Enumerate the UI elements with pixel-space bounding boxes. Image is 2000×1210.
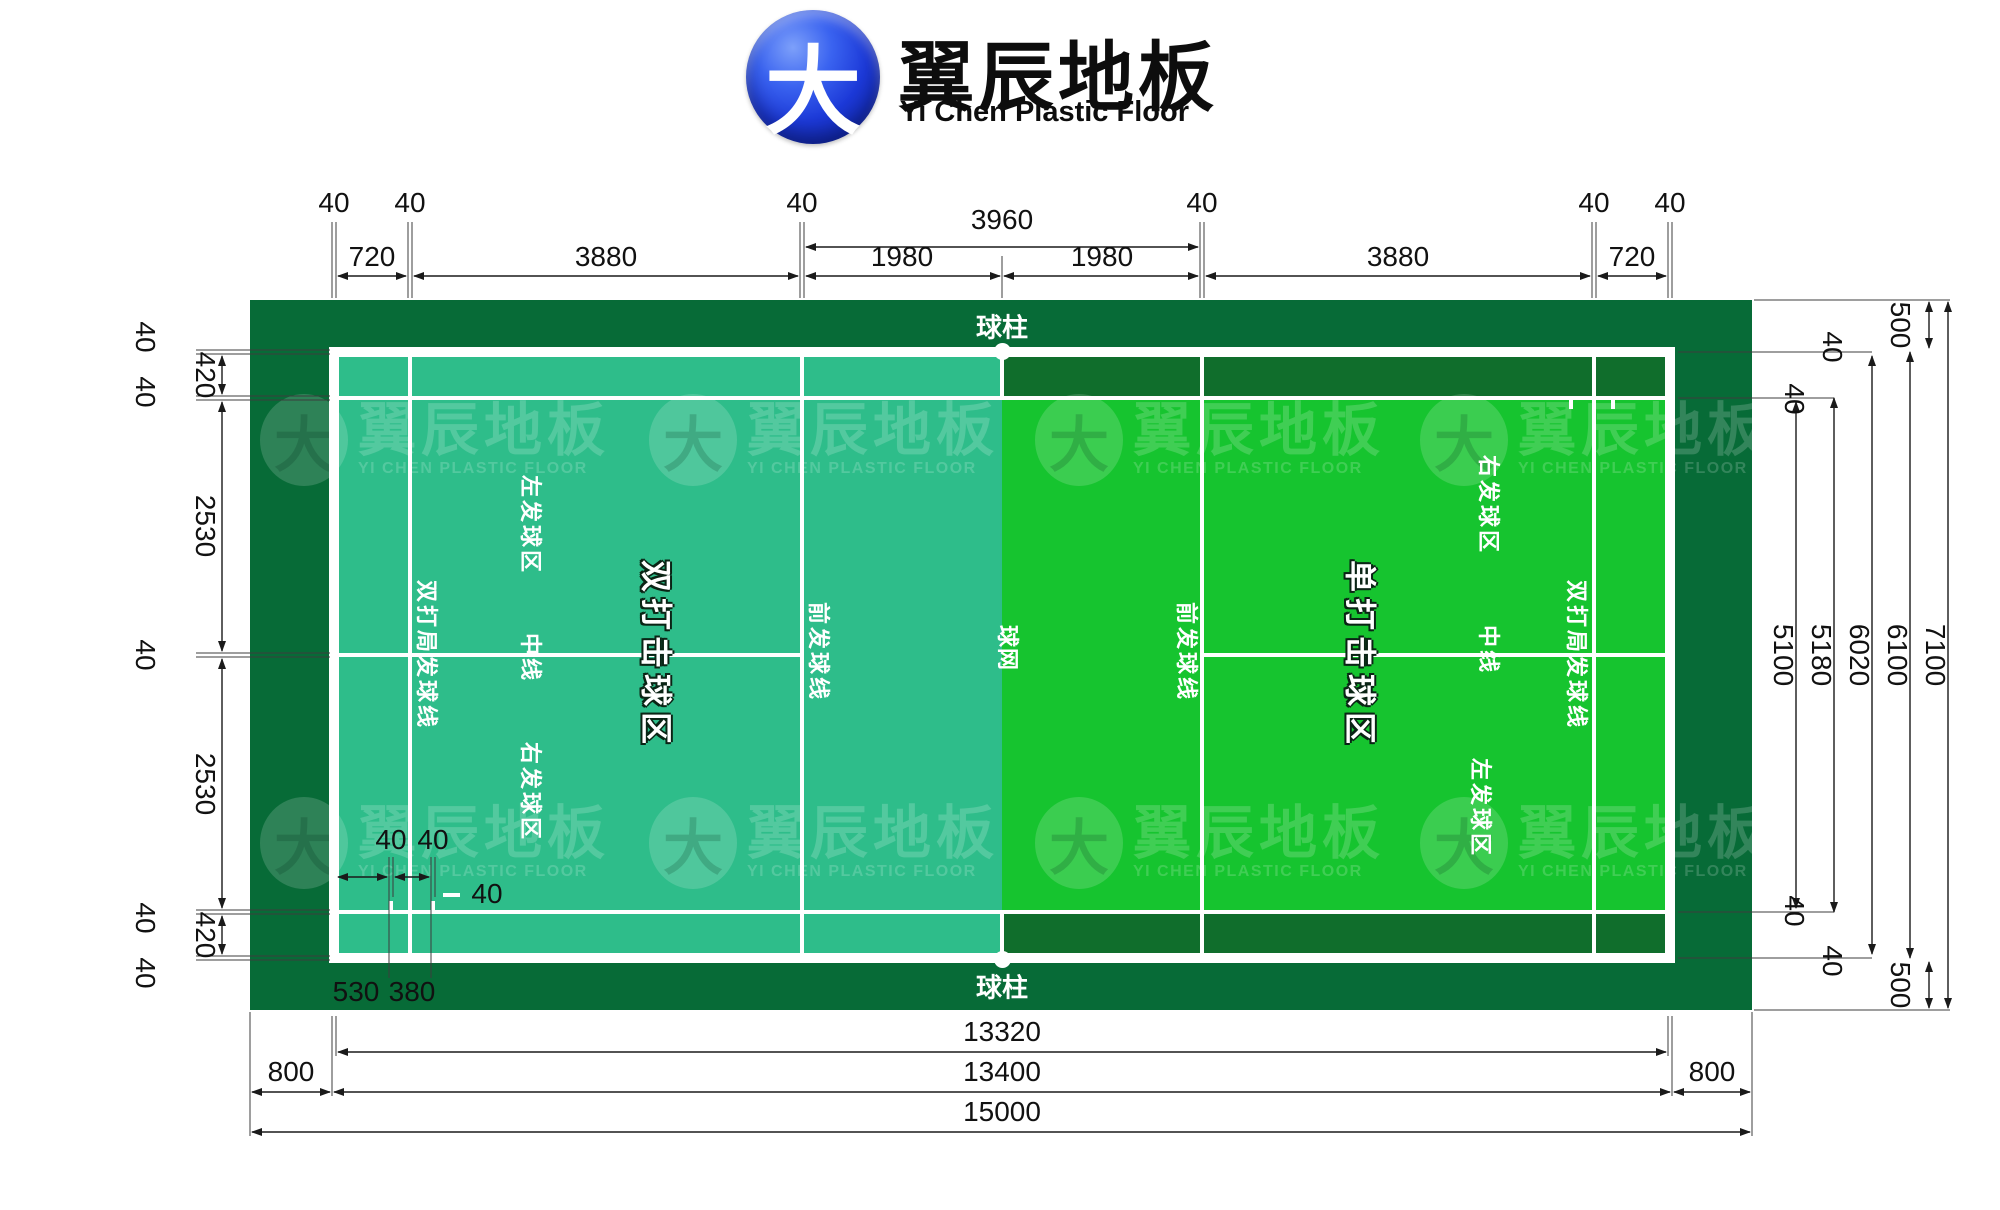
dim-2530-top: 2530 xyxy=(189,495,221,557)
dim-left-40-singles-bottom: 40 xyxy=(129,902,161,933)
dim-380: 380 xyxy=(389,976,436,1008)
dim-13400: 13400 xyxy=(963,1056,1041,1088)
dim-left-40-singles-top: 40 xyxy=(129,376,161,407)
dim-7100: 7100 xyxy=(1919,624,1951,686)
dim-3960: 3960 xyxy=(971,204,1033,236)
dim-top-40-front-service-left: 40 xyxy=(786,187,817,219)
dim-15000: 15000 xyxy=(963,1096,1041,1128)
dim-3880-right: 3880 xyxy=(1367,241,1429,273)
left-service-court-label-left: 左发球区 xyxy=(516,475,548,575)
front-service-line-label-right: 前发球线 xyxy=(1172,602,1204,702)
dim-top-40-long-service-right: 40 xyxy=(1578,187,1609,219)
doubles-long-service-line-label-right: 双打局发球线 xyxy=(1562,580,1594,730)
dim-3880-left: 3880 xyxy=(575,241,637,273)
dim-5100: 5100 xyxy=(1767,624,1799,686)
doubles-long-service-line-label-left: 双打局发球线 xyxy=(412,580,444,730)
dim-500-bottom: 500 xyxy=(1884,962,1916,1009)
dim-720-right: 720 xyxy=(1609,241,1656,273)
dim-top-40-outer-left: 40 xyxy=(318,187,349,219)
dim-500-top: 500 xyxy=(1884,302,1916,349)
front-service-line-label-left: 前发球线 xyxy=(804,602,836,702)
net-post-bottom xyxy=(994,951,1011,968)
dim-top-40-front-service-right: 40 xyxy=(1186,187,1217,219)
doubles-zone-label: 双打击球区 xyxy=(635,560,681,750)
badminton-court-diagram: 大 翼辰地板 Yi Chen Plastic Floor 大 翼辰地板 YI C… xyxy=(0,0,2000,1210)
centre-line-label-right: 中线 xyxy=(1474,625,1506,675)
centre-line-label-left: 中线 xyxy=(516,633,548,683)
dim-420-bottom: 420 xyxy=(189,912,221,959)
dim-right-40-outer-top: 40 xyxy=(1816,331,1848,362)
dim-left-40-centre: 40 xyxy=(129,639,161,670)
singles-zone-label: 单打击球区 xyxy=(1339,560,1385,750)
dim-2530-bottom: 2530 xyxy=(189,753,221,815)
net-label: 球网 xyxy=(993,625,1025,671)
net-post-top xyxy=(994,343,1011,360)
dim-5180: 5180 xyxy=(1805,624,1837,686)
dim-800-right: 800 xyxy=(1689,1056,1736,1088)
dim-tick-40-b: 40 xyxy=(417,824,448,856)
dim-right-40-singles-top: 40 xyxy=(1778,383,1810,414)
dim-1980-right: 1980 xyxy=(1071,241,1133,273)
dim-top-40-long-service-left: 40 xyxy=(394,187,425,219)
net-post-label-bottom: 球柱 xyxy=(976,968,1028,1005)
dim-720-left: 720 xyxy=(349,241,396,273)
dim-line-width-sample-40: 40 xyxy=(471,878,502,910)
right-service-court-label-right: 右发球区 xyxy=(1474,455,1506,555)
dim-13320: 13320 xyxy=(963,1016,1041,1048)
dim-1980-left: 1980 xyxy=(871,241,933,273)
dim-right-40-singles-bottom: 40 xyxy=(1778,895,1810,926)
dim-800-left: 800 xyxy=(268,1056,315,1088)
dim-top-40-outer-right: 40 xyxy=(1654,187,1685,219)
net-post-label-top: 球柱 xyxy=(976,308,1028,345)
dim-6100: 6100 xyxy=(1881,624,1913,686)
dim-420-top: 420 xyxy=(189,352,221,399)
dim-right-40-outer-bottom: 40 xyxy=(1816,945,1848,976)
dim-left-40-outer-top: 40 xyxy=(129,321,161,352)
dim-6020: 6020 xyxy=(1843,624,1875,686)
right-service-court-label-left: 右发球区 xyxy=(516,742,548,842)
left-service-court-label-right: 左发球区 xyxy=(1466,758,1498,858)
dim-left-40-outer-bottom: 40 xyxy=(129,957,161,988)
dim-tick-40-a: 40 xyxy=(375,824,406,856)
dim-530: 530 xyxy=(333,976,380,1008)
